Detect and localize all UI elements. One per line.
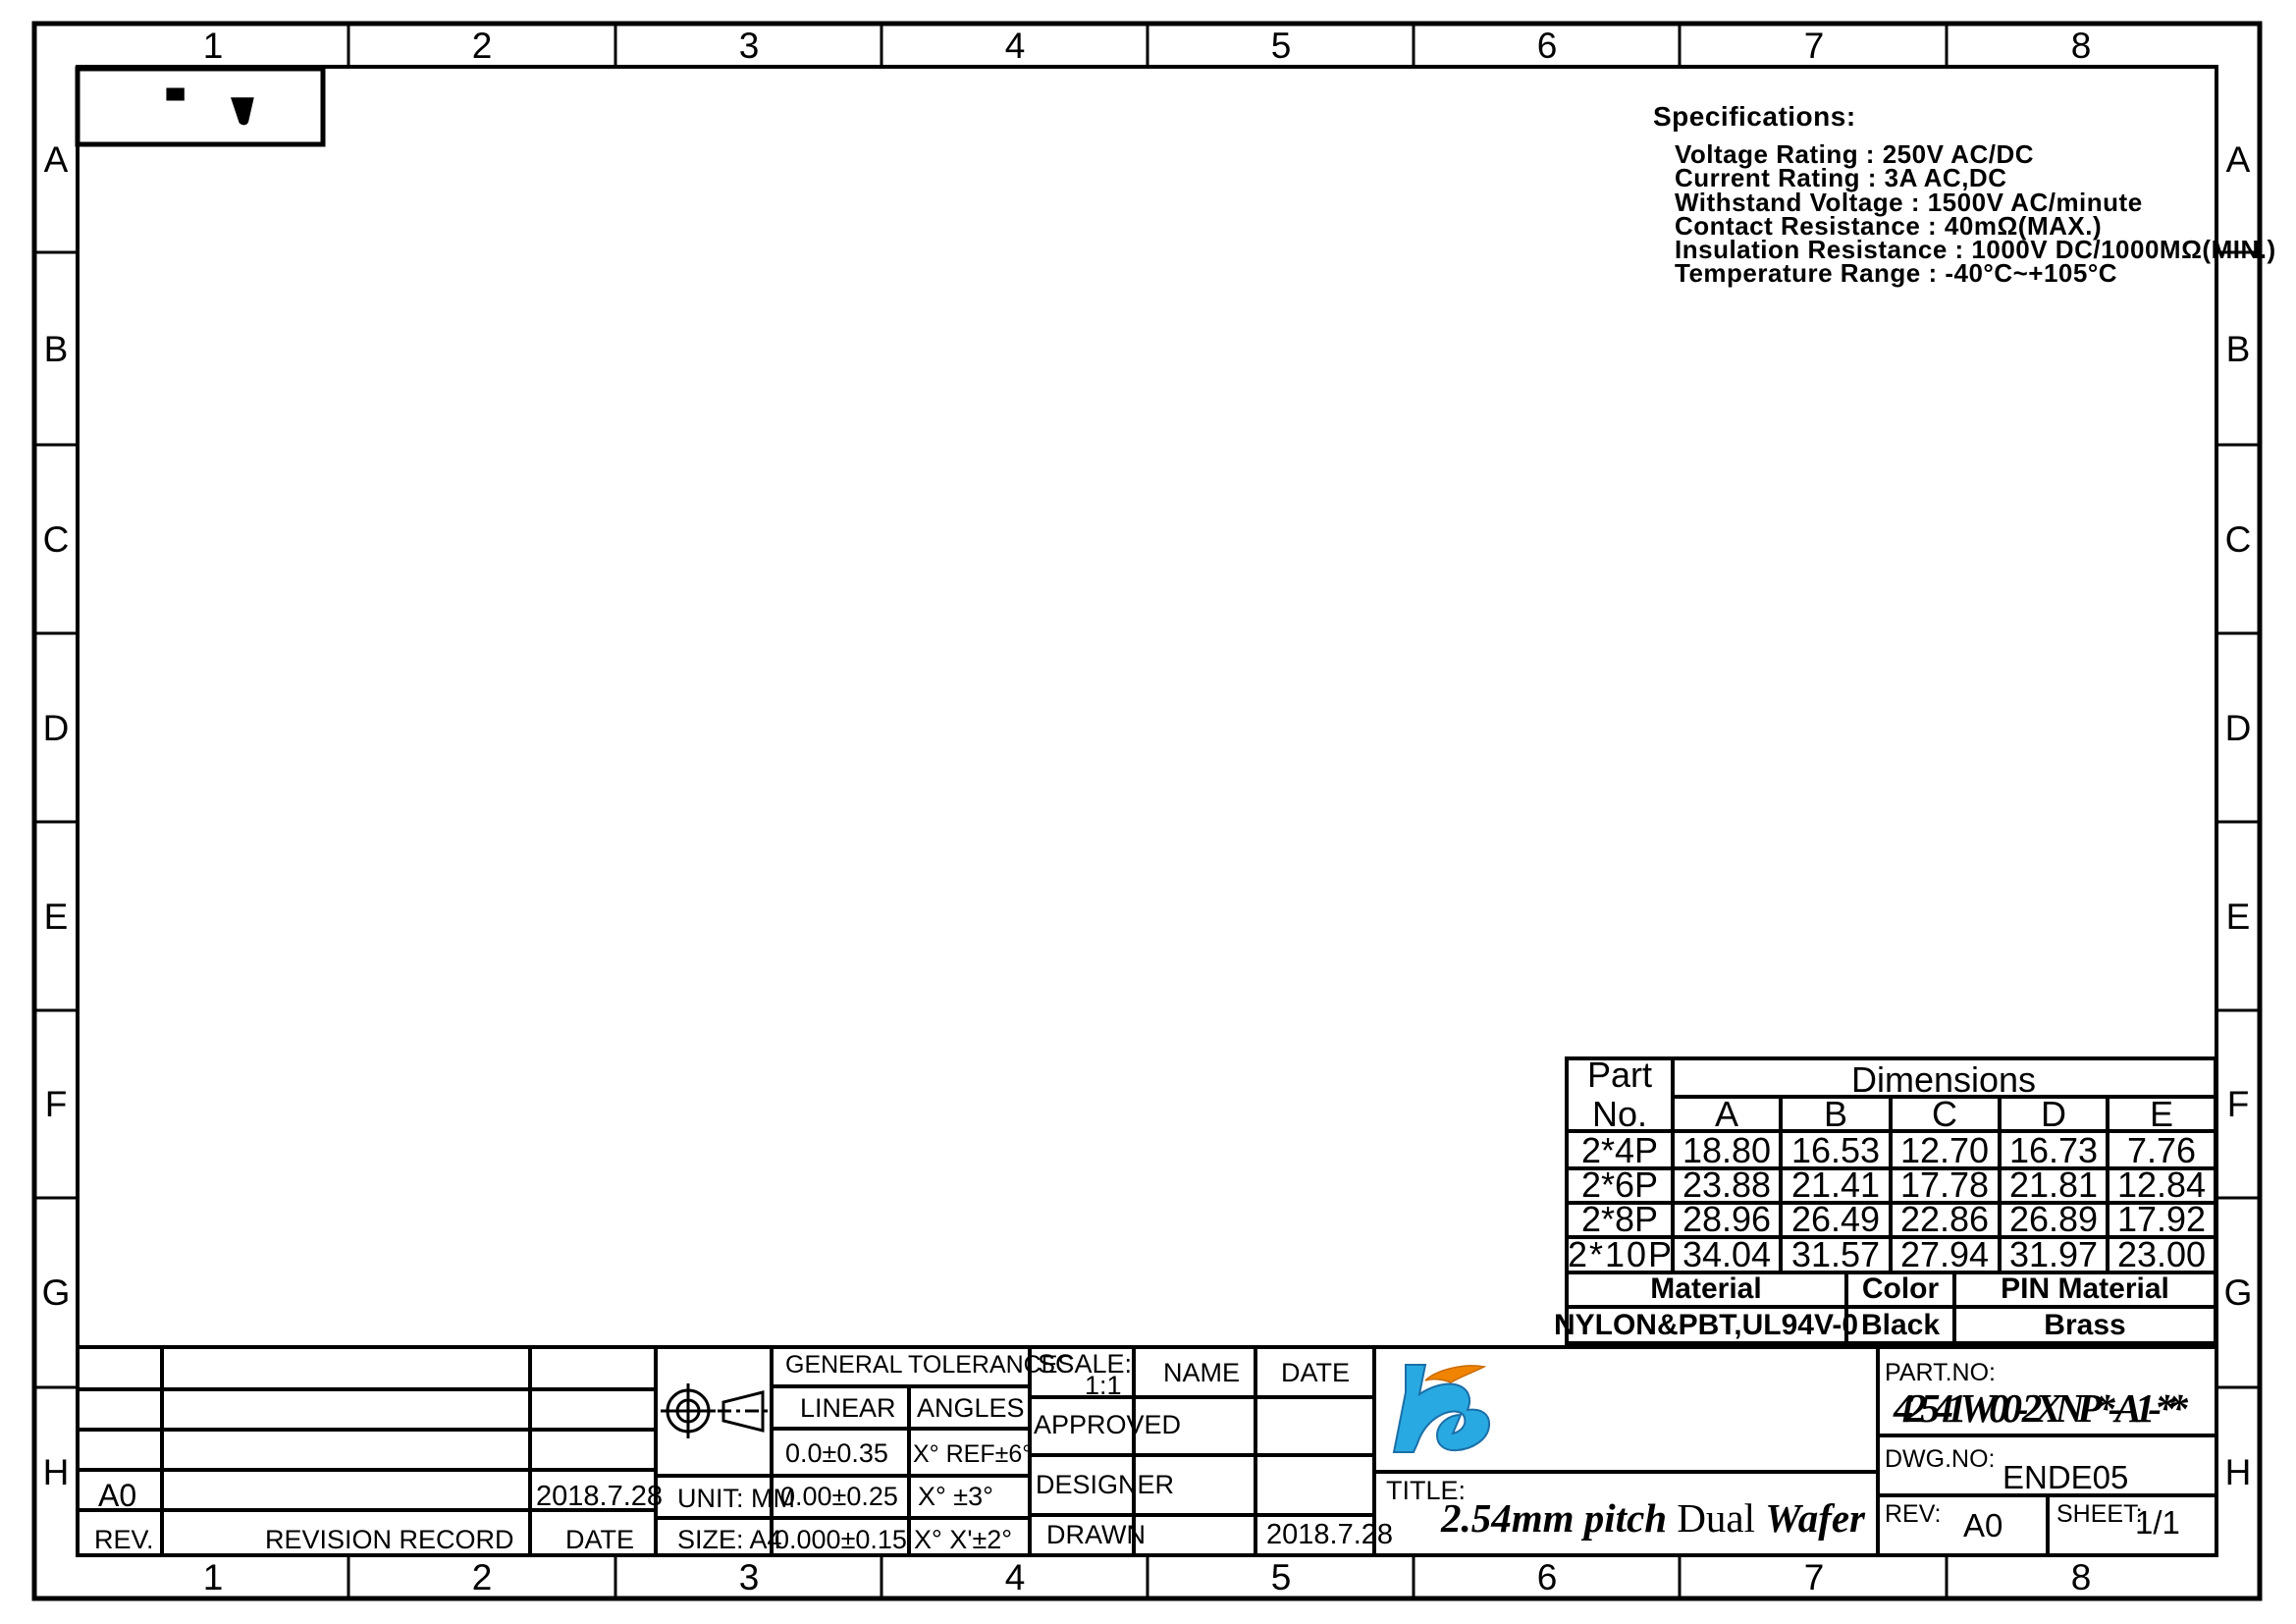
svg-text:7: 7 [1804, 26, 1825, 66]
svg-text:NAME: NAME [1163, 1358, 1240, 1387]
svg-text:1:1: 1:1 [1085, 1371, 1122, 1400]
svg-text:2018.7.28: 2018.7.28 [536, 1481, 663, 1512]
svg-text:ANGLES: ANGLES [917, 1393, 1025, 1423]
svg-text:2.54mm pitch Dual Wafer: 2.54mm pitch Dual Wafer [1440, 1495, 1866, 1541]
svg-text:DWG.NO:: DWG.NO: [1885, 1445, 1996, 1473]
svg-text:NYLON&PBT,UL94V-0: NYLON&PBT,UL94V-0 [1554, 1309, 1858, 1341]
svg-text:Temperature Range : -40°C~+105: Temperature Range : -40°C~+105°C [1675, 258, 2117, 288]
svg-text:3: 3 [739, 26, 760, 66]
svg-text:LINEAR: LINEAR [800, 1393, 896, 1423]
svg-text:26.49: 26.49 [1791, 1199, 1880, 1239]
svg-text:26.89: 26.89 [2009, 1199, 2098, 1239]
svg-text:UNIT: MM: UNIT: MM [677, 1484, 795, 1513]
svg-text:2*10P: 2*10P [1568, 1234, 1672, 1274]
svg-text:No.: No. [1592, 1094, 1647, 1134]
svg-text:SIZE: A4: SIZE: A4 [677, 1525, 782, 1554]
svg-text:H: H [43, 1452, 70, 1492]
svg-text:4: 4 [1005, 1557, 1026, 1597]
svg-text:A: A [44, 139, 69, 180]
svg-text:0.000±0.15: 0.000±0.15 [774, 1525, 907, 1554]
svg-text:Material: Material [1650, 1272, 1761, 1305]
svg-text:DRAWN: DRAWN [1046, 1520, 1146, 1549]
svg-text:PIN Material: PIN Material [2001, 1272, 2169, 1305]
svg-text:28.96: 28.96 [1682, 1199, 1771, 1239]
svg-text:A: A [2226, 139, 2251, 180]
svg-text:Color: Color [1862, 1272, 1940, 1305]
svg-text:DESIGNER: DESIGNER [1036, 1470, 1174, 1499]
svg-text:23.00: 23.00 [2117, 1234, 2206, 1274]
svg-text:2: 2 [472, 1557, 493, 1597]
svg-text:17.92: 17.92 [2117, 1199, 2206, 1239]
svg-text:X° REF±6°: X° REF±6° [913, 1440, 1032, 1468]
svg-text:SHEET:: SHEET: [2056, 1500, 2143, 1528]
svg-text:A0: A0 [98, 1478, 136, 1513]
svg-text:2: 2 [472, 26, 493, 66]
svg-text:E: E [2226, 896, 2251, 937]
svg-text:8: 8 [2071, 26, 2092, 66]
svg-text:3: 3 [739, 1557, 760, 1597]
svg-text:B: B [44, 329, 69, 369]
svg-text:1/1: 1/1 [2135, 1504, 2180, 1541]
svg-text:0.0±0.35: 0.0±0.35 [785, 1438, 888, 1468]
svg-text:D: D [2225, 708, 2252, 748]
svg-text:H: H [2225, 1452, 2252, 1492]
svg-text:DATE: DATE [565, 1525, 634, 1554]
svg-text:2018.7.28: 2018.7.28 [1266, 1519, 1393, 1550]
svg-text:34.04: 34.04 [1682, 1234, 1771, 1274]
svg-text:1: 1 [203, 26, 224, 66]
svg-text:PART.NO:: PART.NO: [1885, 1359, 1996, 1386]
svg-text:5: 5 [1271, 26, 1292, 66]
svg-text:GENERAL TOLERANCES: GENERAL TOLERANCES [785, 1351, 1074, 1379]
svg-text:Brass: Brass [2044, 1309, 2125, 1341]
svg-text:D: D [43, 708, 70, 748]
svg-text:6: 6 [1537, 1557, 1558, 1597]
svg-text:6: 6 [1537, 26, 1558, 66]
svg-text:C: C [1932, 1094, 1957, 1134]
svg-text:7: 7 [1804, 1557, 1825, 1597]
svg-text:Part: Part [1587, 1055, 1652, 1095]
svg-text:2*8P: 2*8P [1581, 1199, 1658, 1239]
svg-text:APPROVED: APPROVED [1034, 1410, 1181, 1439]
svg-text:E: E [44, 896, 69, 937]
svg-text:27.94: 27.94 [1900, 1234, 1989, 1274]
svg-text:C: C [43, 519, 70, 560]
svg-text:F: F [45, 1084, 68, 1124]
svg-text:E: E [2150, 1094, 2173, 1134]
svg-text:G: G [2224, 1272, 2253, 1313]
svg-text:B: B [2226, 329, 2251, 369]
svg-text:REVISION RECORD: REVISION RECORD [265, 1525, 514, 1554]
svg-text:ENDE05: ENDE05 [2002, 1459, 2128, 1495]
svg-text:X° ±3°: X° ±3° [918, 1482, 993, 1511]
svg-text:D: D [2041, 1094, 2066, 1134]
svg-text:C: C [2225, 519, 2252, 560]
svg-text:0.00±0.25: 0.00±0.25 [780, 1482, 898, 1511]
svg-text:8: 8 [2071, 1557, 2092, 1597]
svg-text:REV.: REV. [94, 1525, 154, 1554]
svg-text:1: 1 [203, 1557, 224, 1597]
svg-text:F: F [2227, 1084, 2250, 1124]
svg-text:22.86: 22.86 [1900, 1199, 1989, 1239]
svg-text:42541W00-2XNP*-A1-**: 42541W00-2XNP*-A1-** [1893, 1385, 2189, 1431]
svg-text:31.57: 31.57 [1791, 1234, 1880, 1274]
svg-text:Black: Black [1861, 1309, 1940, 1341]
svg-text:Specifications:: Specifications: [1653, 101, 1856, 132]
svg-text:31.97: 31.97 [2009, 1234, 2098, 1274]
svg-text:A0: A0 [1963, 1507, 2002, 1543]
svg-text:4: 4 [1005, 26, 1026, 66]
svg-text:DATE: DATE [1281, 1358, 1350, 1387]
svg-text:G: G [42, 1272, 71, 1313]
svg-text:X° X'±2°: X° X'±2° [914, 1525, 1012, 1554]
svg-text:B: B [1824, 1094, 1847, 1134]
svg-text:A: A [1715, 1094, 1738, 1134]
svg-text:REV:: REV: [1885, 1500, 1941, 1528]
svg-text:5: 5 [1271, 1557, 1292, 1597]
